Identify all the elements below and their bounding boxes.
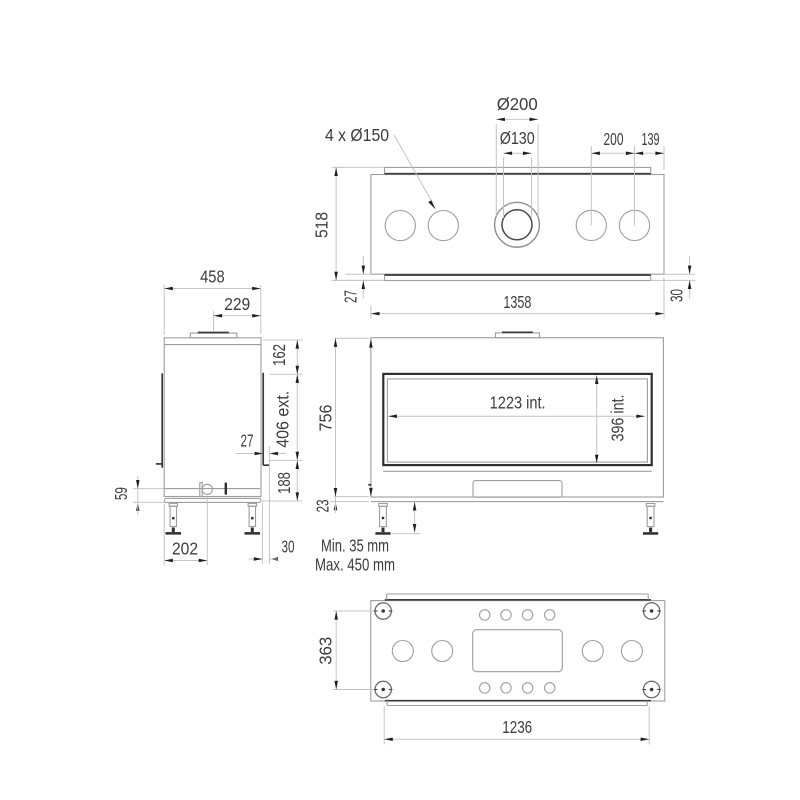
svg-text:1223 int.: 1223 int. xyxy=(490,393,546,413)
svg-text:139: 139 xyxy=(642,129,660,149)
svg-text:1358: 1358 xyxy=(503,292,531,312)
svg-text:518: 518 xyxy=(311,212,331,238)
svg-text:162: 162 xyxy=(269,344,289,366)
svg-text:23: 23 xyxy=(312,499,332,512)
svg-text:27: 27 xyxy=(340,290,360,303)
svg-text:188: 188 xyxy=(274,472,294,494)
svg-text:Max. 450 mm: Max. 450 mm xyxy=(315,555,395,575)
svg-text:229: 229 xyxy=(224,294,250,314)
svg-text:363: 363 xyxy=(315,637,335,665)
svg-text:202: 202 xyxy=(172,538,198,558)
svg-text:30: 30 xyxy=(282,537,295,557)
svg-text:59: 59 xyxy=(111,487,131,500)
svg-text:458: 458 xyxy=(200,267,225,287)
svg-text:1236: 1236 xyxy=(502,717,532,737)
svg-text:Ø200: Ø200 xyxy=(497,94,538,114)
svg-text:756: 756 xyxy=(315,404,335,431)
svg-text:396 int.: 396 int. xyxy=(607,395,627,442)
svg-text:406 ext.: 406 ext. xyxy=(272,391,292,448)
svg-text:4 x Ø150: 4 x Ø150 xyxy=(325,125,389,145)
svg-text:30: 30 xyxy=(666,289,686,302)
svg-text:Ø130: Ø130 xyxy=(500,128,535,148)
svg-text:200: 200 xyxy=(604,129,624,149)
svg-text:Min. 35 mm: Min. 35 mm xyxy=(321,536,389,556)
svg-text:27: 27 xyxy=(241,430,254,450)
